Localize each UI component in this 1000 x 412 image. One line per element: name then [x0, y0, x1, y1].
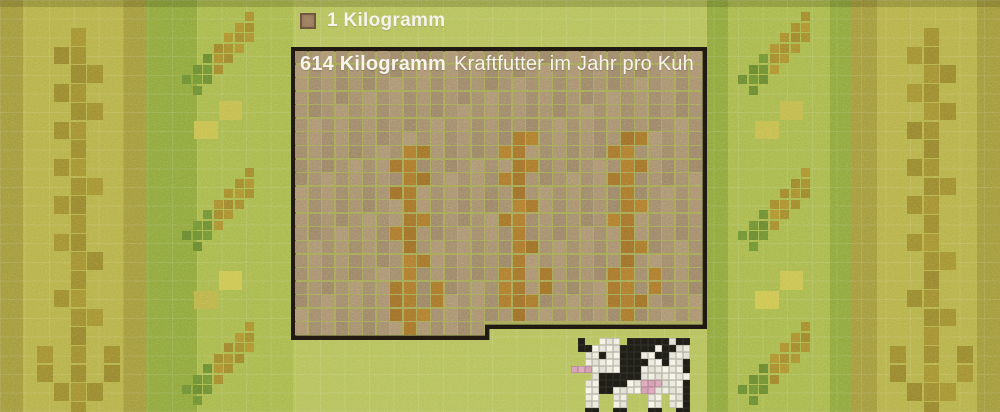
kilogram-unit-square	[581, 146, 593, 158]
kilogram-unit-square	[649, 200, 661, 212]
kilogram-unit-square	[689, 173, 701, 185]
kilogram-unit-square	[390, 78, 402, 90]
kilogram-unit-square	[377, 78, 389, 90]
kilogram-unit-square	[499, 241, 511, 253]
wheat-stalk-motif-cell	[71, 327, 87, 345]
kilogram-unit-square	[404, 173, 416, 185]
cow-cell	[599, 359, 606, 366]
kilogram-unit-square	[349, 255, 361, 267]
grain-sprig-icon-cell	[214, 221, 223, 230]
kilogram-unit-square	[513, 241, 525, 253]
grain-sprig-icon-cell	[770, 375, 779, 384]
cow-cell	[613, 352, 620, 359]
kilogram-unit-square	[662, 146, 674, 158]
wheat-stalk-motif-cell	[54, 196, 70, 214]
grain-sprig-icon-cell	[203, 364, 212, 373]
grain-sprig-icon-cell	[770, 354, 779, 363]
kilogram-unit-square	[377, 268, 389, 280]
kilogram-unit-square	[553, 105, 565, 117]
kilogram-unit-square	[608, 160, 620, 172]
grain-sprig-icon-cell	[203, 221, 212, 230]
kilogram-unit-square	[404, 92, 416, 104]
kilogram-unit-square	[662, 173, 674, 185]
kilogram-unit-square	[676, 119, 688, 131]
grain-sprig-icon-cell	[203, 75, 212, 84]
kilogram-unit-square	[513, 214, 525, 226]
kilogram-unit-square	[295, 160, 307, 172]
unit-square-swatch-icon	[300, 13, 316, 29]
wheat-stalk-motif-cell	[87, 252, 103, 270]
kilogram-unit-square	[417, 200, 429, 212]
kilogram-unit-square	[472, 119, 484, 131]
grain-sprig-icon-cell	[245, 179, 254, 188]
kilogram-unit-square	[417, 187, 429, 199]
kilogram-unit-square	[336, 282, 348, 294]
kilogram-unit-square	[458, 132, 470, 144]
kilogram-unit-square	[309, 282, 321, 294]
cow-cell	[627, 345, 634, 352]
cow-cell	[627, 359, 634, 366]
kilogram-unit-square	[526, 268, 538, 280]
wheat-stalk-motif-cell	[924, 47, 940, 65]
kilogram-unit-square	[608, 105, 620, 117]
cow-cell	[592, 380, 599, 387]
kilogram-unit-square	[445, 214, 457, 226]
kilogram-unit-square	[540, 78, 552, 90]
grain-sprig-icon-cell	[224, 33, 233, 42]
cow-cell	[655, 352, 662, 359]
wheat-stalk-motif-cell	[71, 28, 87, 46]
cow-cell	[648, 359, 655, 366]
kilogram-unit-square	[676, 78, 688, 90]
kilogram-unit-square	[445, 322, 457, 334]
kilogram-unit-square	[445, 241, 457, 253]
kilogram-unit-square	[377, 295, 389, 307]
kilogram-unit-square	[689, 241, 701, 253]
kilogram-unit-square	[445, 227, 457, 239]
kilogram-unit-square	[540, 255, 552, 267]
kilogram-unit-square	[553, 78, 565, 90]
kilogram-unit-square	[417, 132, 429, 144]
wheat-stalk-motif-cell	[957, 365, 973, 383]
cow-cell	[655, 373, 662, 380]
kilogram-unit-square	[649, 268, 661, 280]
kilogram-unit-square	[581, 92, 593, 104]
kilogram-unit-square	[553, 173, 565, 185]
kilogram-unit-square	[608, 187, 620, 199]
grain-sprig-icon-cell	[235, 179, 244, 188]
kilogram-unit-square	[526, 132, 538, 144]
kilogram-unit-square	[445, 92, 457, 104]
kilogram-unit-square	[404, 268, 416, 280]
wheat-stalk-motif-cell	[924, 140, 940, 158]
kilogram-unit-square	[540, 160, 552, 172]
grain-sprig-icon-cell	[193, 221, 202, 230]
kilogram-unit-square	[445, 255, 457, 267]
kilogram-unit-square	[676, 255, 688, 267]
cow-cell	[606, 366, 613, 373]
kilogram-unit-square	[363, 146, 375, 158]
kilogram-unit-square	[649, 132, 661, 144]
kilogram-unit-square	[689, 282, 701, 294]
kilogram-unit-square	[526, 227, 538, 239]
kilogram-unit-square	[349, 295, 361, 307]
kilogram-unit-square	[499, 173, 511, 185]
kilogram-unit-square	[676, 173, 688, 185]
grain-sprig-icon-cell	[749, 75, 758, 84]
wheat-stalk-motif-cell	[71, 196, 87, 214]
cow-cell	[592, 366, 599, 373]
wheat-stalk-motif-cell	[924, 290, 940, 308]
grain-sprig-icon-cell	[245, 189, 254, 198]
wheat-stalk-motif-cell	[87, 178, 103, 196]
kilogram-unit-square	[676, 227, 688, 239]
kilogram-unit-square	[336, 92, 348, 104]
kilogram-unit-square	[635, 173, 647, 185]
cow-cell	[641, 373, 648, 380]
kilogram-unit-square	[499, 119, 511, 131]
kilogram-unit-square	[581, 282, 593, 294]
kilogram-unit-square	[404, 78, 416, 90]
grain-sprig-icon-cell	[235, 343, 244, 352]
kilogram-unit-square	[390, 105, 402, 117]
wheat-stalk-motif-cell	[71, 103, 87, 121]
grain-sprig-icon-cell	[245, 333, 254, 342]
wheat-stalk-motif-cell	[907, 84, 923, 102]
kilogram-unit-square	[309, 268, 321, 280]
kilogram-unit-square	[309, 92, 321, 104]
kilogram-unit-square	[295, 119, 307, 131]
kilogram-unit-square	[689, 78, 701, 90]
kilogram-unit-square	[513, 160, 525, 172]
kilogram-unit-square	[567, 241, 579, 253]
kilogram-unit-square	[594, 214, 606, 226]
kilogram-unit-square	[649, 105, 661, 117]
kilogram-unit-square	[431, 132, 443, 144]
kilogram-unit-square	[295, 92, 307, 104]
kilogram-unit-square	[431, 200, 443, 212]
kilogram-unit-square	[485, 92, 497, 104]
wheat-stalk-motif-cell	[924, 159, 940, 177]
kilogram-unit-square	[363, 92, 375, 104]
kilogram-unit-square	[540, 214, 552, 226]
kilogram-unit-square	[309, 119, 321, 131]
kilogram-unit-square	[649, 227, 661, 239]
kilogram-unit-square	[431, 227, 443, 239]
kilogram-unit-square	[445, 173, 457, 185]
cow-cell	[599, 338, 606, 345]
kilogram-unit-square	[336, 241, 348, 253]
kilogram-unit-square	[390, 214, 402, 226]
cow-cell	[676, 394, 683, 401]
grain-sprig-icon-cell	[791, 354, 800, 363]
kilogram-unit-square	[499, 282, 511, 294]
kilogram-unit-square	[513, 146, 525, 158]
cow-cell	[613, 408, 620, 412]
kilogram-unit-square	[295, 187, 307, 199]
kilogram-unit-square	[485, 173, 497, 185]
kilogram-unit-square	[621, 173, 633, 185]
kilogram-unit-square	[621, 282, 633, 294]
kilogram-unit-square	[472, 295, 484, 307]
cow-cell	[571, 366, 578, 373]
kilogram-unit-square	[513, 227, 525, 239]
kilogram-unit-square	[594, 200, 606, 212]
wheat-stalk-motif-cell	[71, 365, 87, 383]
grain-sprig-icon-cell	[214, 65, 223, 74]
cow-cell	[669, 401, 676, 408]
cow-cell	[676, 373, 683, 380]
kilogram-unit-square	[336, 295, 348, 307]
kilogram-unit-square	[499, 146, 511, 158]
wheat-stalk-motif-cell	[71, 122, 87, 140]
kilogram-unit-square	[472, 78, 484, 90]
grain-sprig-icon-cell	[801, 179, 810, 188]
cow-cell	[683, 366, 690, 373]
grain-sprig-icon-cell	[749, 385, 758, 394]
cow-cell	[634, 359, 641, 366]
cow-cell	[641, 359, 648, 366]
wheat-stalk-motif-cell	[87, 309, 103, 327]
cow-cell	[585, 366, 592, 373]
kilogram-unit-square	[635, 309, 647, 321]
kilogram-unit-square	[322, 160, 334, 172]
grain-sprig-icon-cell	[203, 231, 212, 240]
grain-sprig-icon-cell	[770, 65, 779, 74]
grain-sprig-icon-cell	[770, 54, 779, 63]
kilogram-unit-square	[621, 92, 633, 104]
kilogram-unit-square	[553, 282, 565, 294]
kilogram-unit-square	[431, 119, 443, 131]
title-rest: Kraftfutter im Jahr pro Kuh	[454, 53, 694, 75]
kilogram-unit-square	[594, 119, 606, 131]
kilogram-unit-square	[513, 105, 525, 117]
kilogram-unit-square	[540, 173, 552, 185]
wheat-stalk-motif-cell	[907, 196, 923, 214]
cow-cell	[585, 352, 592, 359]
kilogram-unit-square	[649, 160, 661, 172]
kilogram-unit-square	[322, 146, 334, 158]
kilogram-unit-square	[594, 309, 606, 321]
legend-label: 1 Kilogramm	[327, 10, 445, 32]
kilogram-unit-square	[553, 146, 565, 158]
kilogram-unit-square	[322, 78, 334, 90]
grain-sprig-icon-cell	[770, 200, 779, 209]
kilogram-unit-square	[499, 309, 511, 321]
kilogram-unit-square	[295, 214, 307, 226]
kilogram-unit-square	[608, 227, 620, 239]
kilogram-unit-square	[581, 255, 593, 267]
grain-sprig-icon-cell	[224, 200, 233, 209]
grain-sprig-icon-cell	[780, 364, 789, 373]
kilogram-unit-square	[621, 295, 633, 307]
kilogram-unit-square	[662, 105, 674, 117]
kilogram-unit-square	[499, 160, 511, 172]
kilogram-unit-square	[635, 214, 647, 226]
kilogram-unit-square	[540, 119, 552, 131]
kilogram-unit-square	[417, 282, 429, 294]
kilogram-unit-square	[567, 173, 579, 185]
kilogram-unit-square	[526, 214, 538, 226]
kilogram-unit-square	[689, 255, 701, 267]
wheat-stalk-motif-cell	[54, 122, 70, 140]
kilogram-unit-square	[417, 146, 429, 158]
wheat-stalk-motif-cell	[71, 84, 87, 102]
cow-cell	[592, 401, 599, 408]
kilogram-unit-square	[390, 255, 402, 267]
kilogram-unit-square	[445, 309, 457, 321]
cow-cell	[606, 345, 613, 352]
wheat-stalk-motif-cell	[924, 309, 940, 327]
grain-sprig-icon-cell	[759, 364, 768, 373]
grain-sprig-icon-cell	[224, 54, 233, 63]
grain-sprig-icon-cell	[193, 242, 202, 251]
kilogram-unit-square	[322, 241, 334, 253]
kilogram-unit-square	[581, 160, 593, 172]
cow-cell	[669, 380, 676, 387]
cow-cell	[683, 359, 690, 366]
cow-cell	[599, 366, 606, 373]
kilogram-unit-square	[689, 160, 701, 172]
title-amount: 614 Kilogramm	[300, 53, 446, 75]
wheat-stalk-motif-cell	[71, 252, 87, 270]
kilogram-unit-square	[363, 295, 375, 307]
wheat-stalk-motif-cell	[940, 383, 956, 401]
kilogram-unit-square	[485, 295, 497, 307]
kilogram-unit-square	[689, 92, 701, 104]
kilogram-unit-square	[676, 200, 688, 212]
cow-cell	[634, 373, 641, 380]
kilogram-unit-square	[608, 92, 620, 104]
kilogram-unit-square	[445, 295, 457, 307]
kilogram-unit-square	[336, 119, 348, 131]
wheat-stalk-motif-cell	[54, 234, 70, 252]
cow-cell	[592, 387, 599, 394]
kilogram-unit-square	[485, 241, 497, 253]
kilogram-unit-square	[513, 295, 525, 307]
grain-sprig-icon-cell	[791, 33, 800, 42]
grain-sprig-icon-cell	[203, 210, 212, 219]
grain-sprig-icon-cell	[801, 333, 810, 342]
kilogram-unit-square	[567, 187, 579, 199]
feed-infographic: 1 Kilogramm 614 KilogrammKraftfutter im …	[0, 0, 1000, 412]
kilogram-unit-square	[363, 241, 375, 253]
kilogram-unit-square	[363, 268, 375, 280]
kilogram-unit-square	[322, 295, 334, 307]
kilogram-unit-square	[431, 268, 443, 280]
kilogram-unit-square	[676, 214, 688, 226]
cow-cell	[613, 345, 620, 352]
wheat-stalk-motif-cell	[71, 309, 87, 327]
wheat-stalk-motif-cell	[71, 271, 87, 289]
wheat-stalk-motif-cell	[87, 383, 103, 401]
kilogram-unit-square	[363, 119, 375, 131]
kilogram-unit-square	[295, 282, 307, 294]
kilogram-unit-square	[540, 132, 552, 144]
grain-sprig-icon-cell	[759, 65, 768, 74]
kilogram-unit-square	[390, 187, 402, 199]
wheat-stalk-motif-cell	[71, 402, 87, 412]
kilogram-unit-square	[349, 241, 361, 253]
cow-cell	[683, 394, 690, 401]
grain-sprig-icon-cell	[214, 375, 223, 384]
highlight-square-cell	[219, 271, 243, 290]
cow-cell	[662, 366, 669, 373]
kilogram-unit-square	[458, 146, 470, 158]
grain-sprig-icon-cell	[224, 343, 233, 352]
cow-cell	[620, 394, 627, 401]
kilogram-unit-square	[540, 92, 552, 104]
kilogram-unit-square	[567, 146, 579, 158]
kilogram-unit-square	[349, 214, 361, 226]
wheat-stalk-motif-cell	[54, 159, 70, 177]
kilogram-unit-square	[377, 322, 389, 334]
kilogram-unit-square	[349, 227, 361, 239]
kilogram-unit-square	[363, 214, 375, 226]
kilogram-unit-square	[349, 309, 361, 321]
kilogram-unit-square	[621, 227, 633, 239]
cow-cell	[641, 338, 648, 345]
grain-sprig-icon-cell	[235, 33, 244, 42]
kilogram-unit-square	[676, 309, 688, 321]
kilogram-unit-square	[390, 241, 402, 253]
kilogram-unit-square	[404, 105, 416, 117]
kilogram-unit-square	[431, 105, 443, 117]
cow-cell	[648, 373, 655, 380]
kilogram-unit-square	[676, 268, 688, 280]
kilogram-unit-square	[649, 187, 661, 199]
kilogram-unit-square	[635, 92, 647, 104]
cow-cell	[606, 380, 613, 387]
kilogram-unit-square	[499, 255, 511, 267]
kilogram-unit-square	[689, 146, 701, 158]
kilogram-unit-square	[581, 187, 593, 199]
highlight-square-cell	[755, 291, 779, 310]
kilogram-unit-square	[404, 160, 416, 172]
kilogram-unit-square	[295, 146, 307, 158]
grain-sprig-icon-cell	[780, 33, 789, 42]
grain-sprig-icon-cell	[738, 75, 747, 84]
kilogram-unit-square	[377, 187, 389, 199]
kilogram-unit-square	[377, 255, 389, 267]
cow-cell	[585, 394, 592, 401]
kilogram-unit-square	[553, 255, 565, 267]
grain-sprig-icon-cell	[759, 54, 768, 63]
kilogram-unit-square	[581, 295, 593, 307]
kilogram-unit-square	[513, 282, 525, 294]
kilogram-unit-square	[445, 187, 457, 199]
grain-sprig-icon-cell	[780, 54, 789, 63]
kilogram-unit-square	[322, 309, 334, 321]
kilogram-unit-square	[309, 187, 321, 199]
kilogram-unit-square	[526, 105, 538, 117]
kilogram-unit-square	[662, 295, 674, 307]
cow-cell	[606, 373, 613, 380]
kilogram-unit-square	[526, 200, 538, 212]
kilogram-unit-square	[295, 295, 307, 307]
kilogram-unit-square	[349, 132, 361, 144]
kilogram-unit-square	[594, 268, 606, 280]
kilogram-unit-square	[431, 214, 443, 226]
cow-cell	[585, 345, 592, 352]
cow-cell	[683, 345, 690, 352]
kilogram-unit-square	[431, 173, 443, 185]
kilogram-unit-square	[635, 268, 647, 280]
grain-sprig-icon-cell	[791, 189, 800, 198]
kilogram-unit-square	[349, 173, 361, 185]
kilogram-unit-square	[553, 227, 565, 239]
cow-cell	[669, 394, 676, 401]
